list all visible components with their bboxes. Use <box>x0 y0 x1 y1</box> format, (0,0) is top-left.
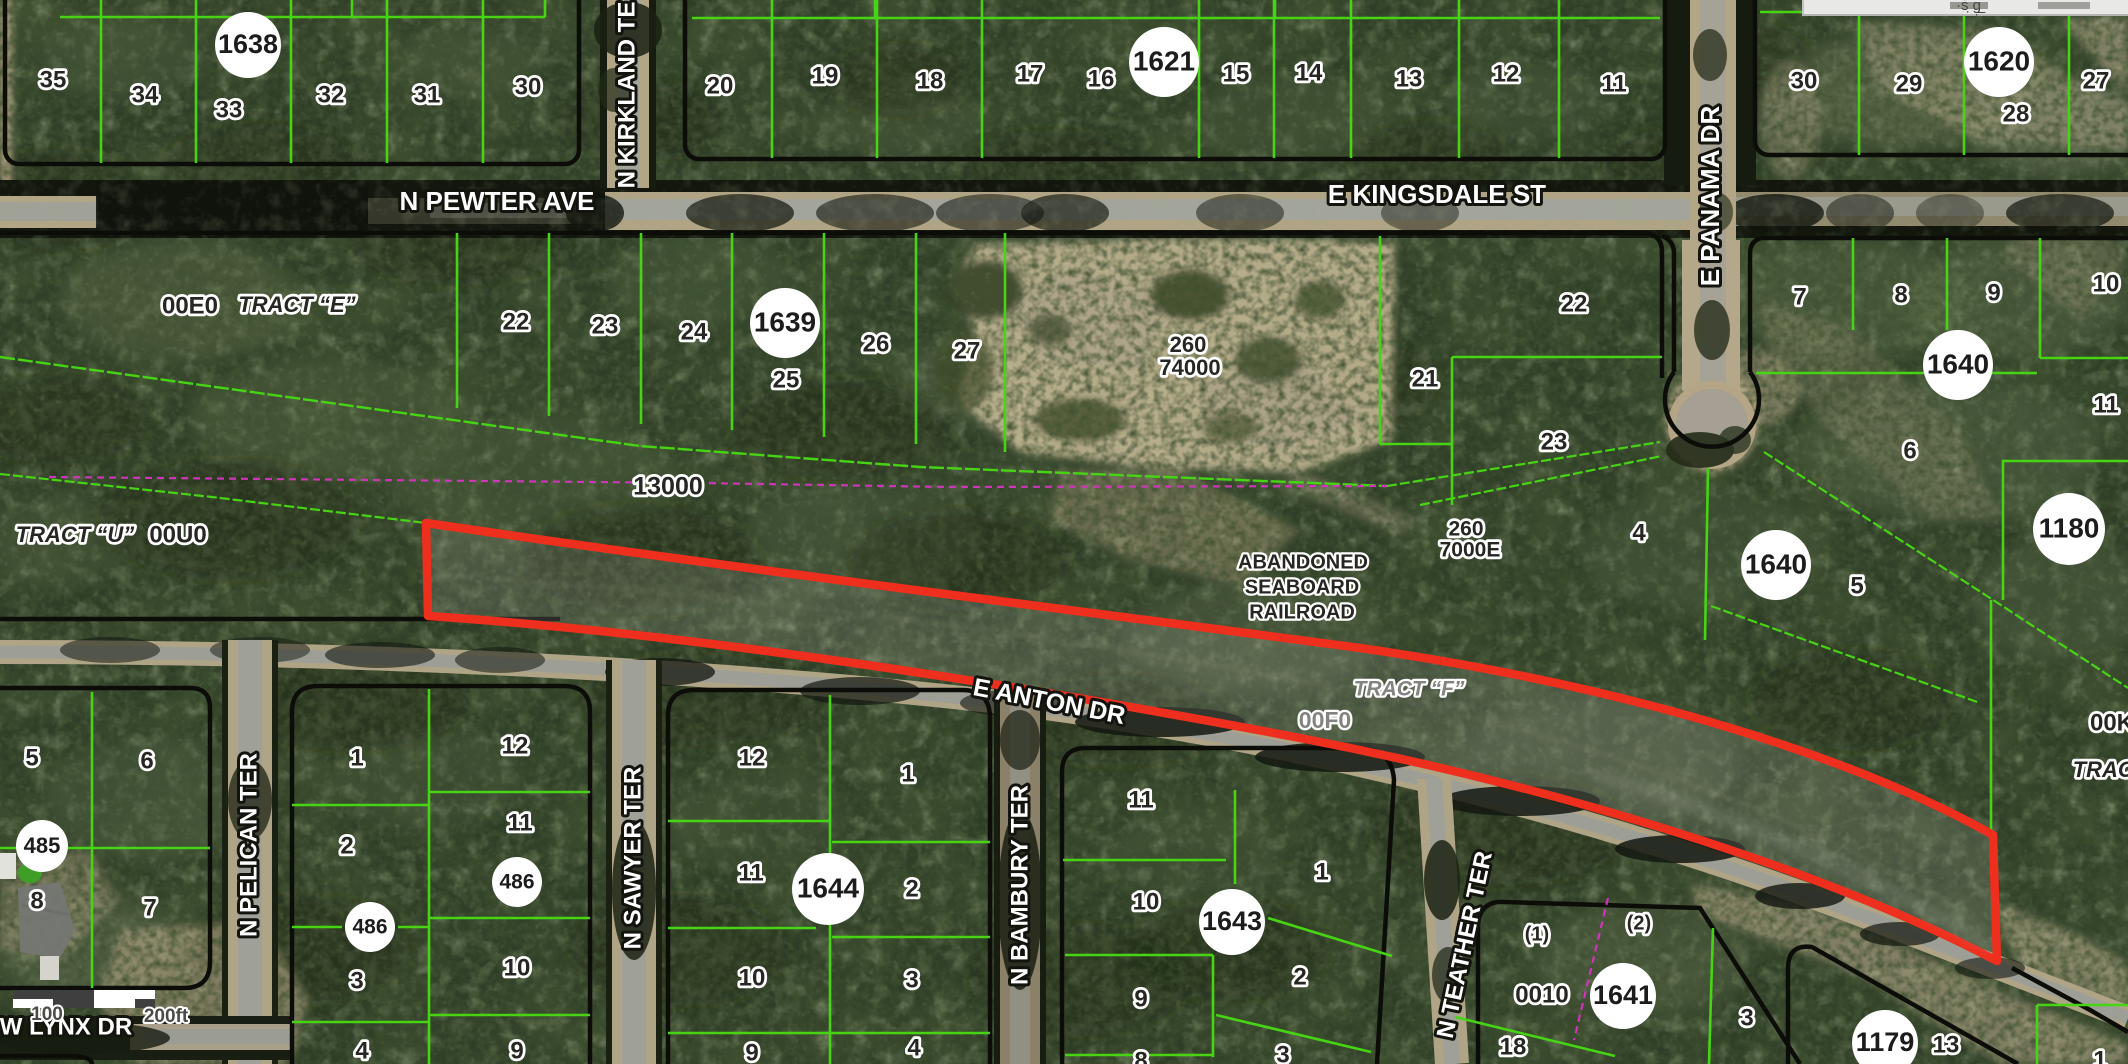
svg-text:7: 7 <box>143 894 156 921</box>
svg-text:19: 19 <box>812 62 839 89</box>
svg-text:9: 9 <box>745 1039 758 1064</box>
svg-text:15: 15 <box>1223 60 1250 87</box>
svg-text:1: 1 <box>1315 858 1328 885</box>
svg-text:22: 22 <box>503 308 530 335</box>
svg-text:18: 18 <box>917 67 944 94</box>
svg-text:E PANAMA DR: E PANAMA DR <box>1695 106 1725 287</box>
svg-text:1641: 1641 <box>1593 980 1653 1010</box>
svg-text:TRACT “F”: TRACT “F” <box>1354 678 1465 701</box>
svg-text:11: 11 <box>2093 391 2118 418</box>
svg-text:00F0: 00F0 <box>1299 707 1351 733</box>
svg-text:32: 32 <box>318 81 345 108</box>
svg-text:28: 28 <box>2003 100 2030 127</box>
svg-text:33: 33 <box>216 96 243 123</box>
svg-text:3: 3 <box>350 967 363 994</box>
svg-text:1620: 1620 <box>1968 45 2030 76</box>
svg-text:RAILROAD: RAILROAD <box>1249 601 1355 623</box>
svg-text:9: 9 <box>1134 985 1147 1012</box>
svg-text:260: 260 <box>1448 518 1483 541</box>
svg-text:W LYNX DR: W LYNX DR <box>0 1013 132 1040</box>
svg-text:3: 3 <box>1740 1004 1753 1031</box>
svg-text:200ft: 200ft <box>144 1006 189 1027</box>
svg-text:1: 1 <box>350 744 363 771</box>
svg-text:1640: 1640 <box>1745 548 1807 579</box>
svg-text:N PEWTER AVE: N PEWTER AVE <box>399 186 594 216</box>
svg-text:13: 13 <box>1396 65 1423 92</box>
svg-text:10: 10 <box>739 964 766 991</box>
svg-text:260: 260 <box>1170 332 1207 357</box>
svg-text:1621: 1621 <box>1133 45 1195 76</box>
svg-text:23: 23 <box>592 312 619 339</box>
svg-text:4: 4 <box>355 1037 369 1064</box>
svg-text:9: 9 <box>1987 279 2000 306</box>
svg-text:1: 1 <box>2093 1046 2106 1064</box>
svg-text:29: 29 <box>1896 70 1923 97</box>
svg-text:13000: 13000 <box>633 473 703 501</box>
svg-text:00E0: 00E0 <box>162 292 218 319</box>
svg-text:30: 30 <box>1791 67 1818 94</box>
svg-text:25: 25 <box>773 366 800 393</box>
svg-text:74000: 74000 <box>1159 355 1220 380</box>
svg-text:34: 34 <box>132 81 159 108</box>
svg-text:6: 6 <box>140 747 153 774</box>
svg-text:100: 100 <box>31 1004 63 1025</box>
svg-text:5: 5 <box>25 744 38 771</box>
svg-text:SEABOARD: SEABOARD <box>1245 576 1359 598</box>
svg-text:485: 485 <box>24 833 61 858</box>
svg-text:1: 1 <box>901 760 914 787</box>
svg-text:21: 21 <box>1412 365 1439 392</box>
svg-text:TRACT: TRACT <box>2073 757 2128 782</box>
svg-text:18: 18 <box>1500 1033 1527 1060</box>
svg-text:00K: 00K <box>2090 709 2128 736</box>
svg-text:N BAMBURY TER: N BAMBURY TER <box>1006 785 1033 985</box>
svg-text:9: 9 <box>510 1037 523 1064</box>
svg-text:11: 11 <box>507 809 532 836</box>
svg-text:E KINGSDALE ST: E KINGSDALE ST <box>1328 179 1546 209</box>
svg-text:10: 10 <box>1133 888 1160 915</box>
svg-text:4: 4 <box>907 1034 921 1061</box>
svg-text:486: 486 <box>499 871 534 894</box>
svg-text:6: 6 <box>1903 437 1916 464</box>
svg-text:1640: 1640 <box>1927 348 1989 379</box>
svg-text:10: 10 <box>2093 270 2120 297</box>
svg-text:27: 27 <box>2083 67 2110 94</box>
svg-text:1638: 1638 <box>218 29 278 59</box>
svg-text:ABANDONED: ABANDONED <box>1238 551 1368 573</box>
svg-text:N SAWYER TER: N SAWYER TER <box>619 767 646 950</box>
svg-text:TRACT “U”: TRACT “U” <box>16 522 135 547</box>
svg-text:11: 11 <box>1128 786 1153 813</box>
svg-text:4: 4 <box>1632 519 1646 546</box>
svg-text:2: 2 <box>1293 963 1306 990</box>
svg-text:TRACT “E”: TRACT “E” <box>238 292 355 317</box>
svg-text:2: 2 <box>905 875 918 902</box>
svg-text:2: 2 <box>340 832 353 859</box>
svg-text:486: 486 <box>352 916 387 939</box>
svg-text:12: 12 <box>1493 60 1520 87</box>
svg-text:22: 22 <box>1561 290 1588 317</box>
svg-text:N PELICAN TER: N PELICAN TER <box>235 753 262 937</box>
svg-text:24: 24 <box>681 318 708 345</box>
svg-text:5: 5 <box>1850 572 1863 599</box>
svg-text:3: 3 <box>1276 1041 1289 1064</box>
svg-text:13: 13 <box>1933 1031 1960 1058</box>
svg-text:1639: 1639 <box>754 306 816 337</box>
svg-text:27: 27 <box>954 337 981 364</box>
svg-text:1644: 1644 <box>797 872 860 903</box>
svg-text:1180: 1180 <box>2039 512 2100 543</box>
svg-text:8: 8 <box>30 887 43 914</box>
svg-text:30: 30 <box>515 73 542 100</box>
svg-text:(2): (2) <box>1627 912 1651 934</box>
svg-text:1643: 1643 <box>1202 906 1262 936</box>
svg-text:31: 31 <box>414 81 441 108</box>
svg-text:23: 23 <box>1541 428 1568 455</box>
svg-text:7: 7 <box>1793 283 1806 310</box>
svg-text:11: 11 <box>1601 70 1626 97</box>
svg-text:8: 8 <box>1134 1047 1147 1064</box>
svg-text:(1): (1) <box>1525 923 1549 945</box>
svg-text:35: 35 <box>40 66 67 93</box>
svg-text:12: 12 <box>739 744 766 771</box>
svg-text:14: 14 <box>1296 59 1323 86</box>
svg-text:16: 16 <box>1088 65 1115 92</box>
svg-text:17: 17 <box>1017 60 1044 87</box>
svg-text:11: 11 <box>738 859 763 886</box>
svg-text:0010: 0010 <box>1515 981 1568 1008</box>
svg-text:20: 20 <box>707 72 734 99</box>
svg-text:1179: 1179 <box>1856 1027 1915 1057</box>
svg-text:12: 12 <box>502 732 529 759</box>
svg-text:10: 10 <box>504 954 531 981</box>
svg-text:7000E: 7000E <box>1440 539 1501 562</box>
svg-text:26: 26 <box>863 330 890 357</box>
svg-text:00U0: 00U0 <box>149 521 206 548</box>
svg-text:N KIRKLAND TE: N KIRKLAND TE <box>613 2 640 189</box>
svg-text:8: 8 <box>1894 281 1907 308</box>
svg-text:3: 3 <box>905 966 918 993</box>
